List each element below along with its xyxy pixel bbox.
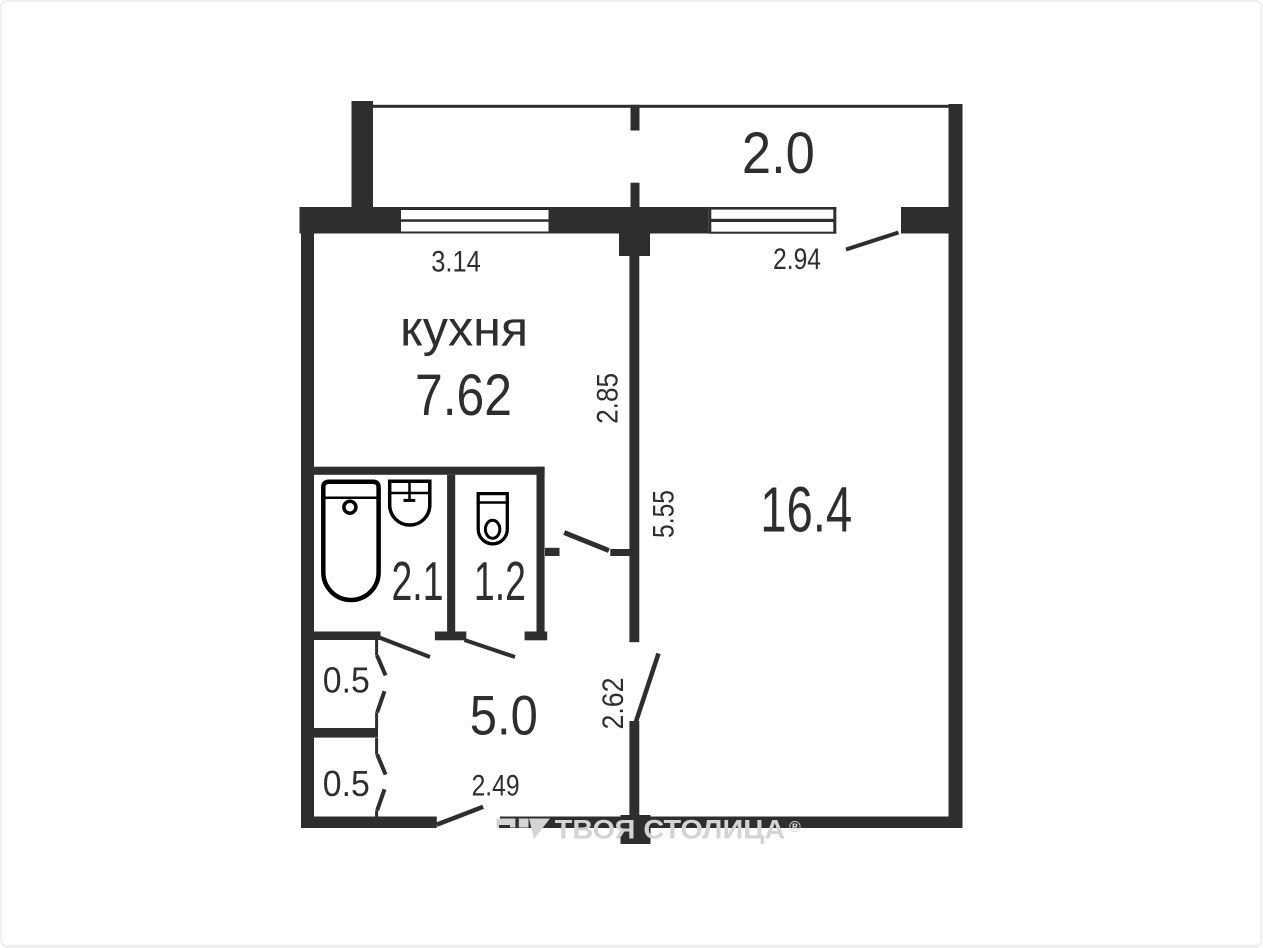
svg-text:2.49: 2.49 (472, 770, 520, 803)
svg-text:0.5: 0.5 (323, 660, 370, 701)
svg-text:0.5: 0.5 (323, 763, 370, 804)
svg-text:кухня: кухня (400, 301, 528, 357)
svg-text:7.62: 7.62 (415, 363, 512, 428)
svg-text:5.55: 5.55 (648, 490, 681, 538)
svg-text:ТВОЯ СТОЛИЦА: ТВОЯ СТОЛИЦА (555, 815, 786, 845)
svg-text:2.0: 2.0 (742, 121, 815, 186)
svg-text:2.94: 2.94 (773, 243, 821, 276)
svg-text:16.4: 16.4 (760, 474, 852, 546)
svg-text:1.2: 1.2 (474, 550, 526, 612)
svg-text:2.85: 2.85 (592, 373, 625, 424)
svg-text:®: ® (789, 819, 801, 836)
svg-text:3.14: 3.14 (431, 246, 481, 279)
svg-text:5.0: 5.0 (470, 684, 538, 747)
svg-text:2.1: 2.1 (392, 550, 444, 612)
svg-text:2.62: 2.62 (597, 678, 630, 730)
